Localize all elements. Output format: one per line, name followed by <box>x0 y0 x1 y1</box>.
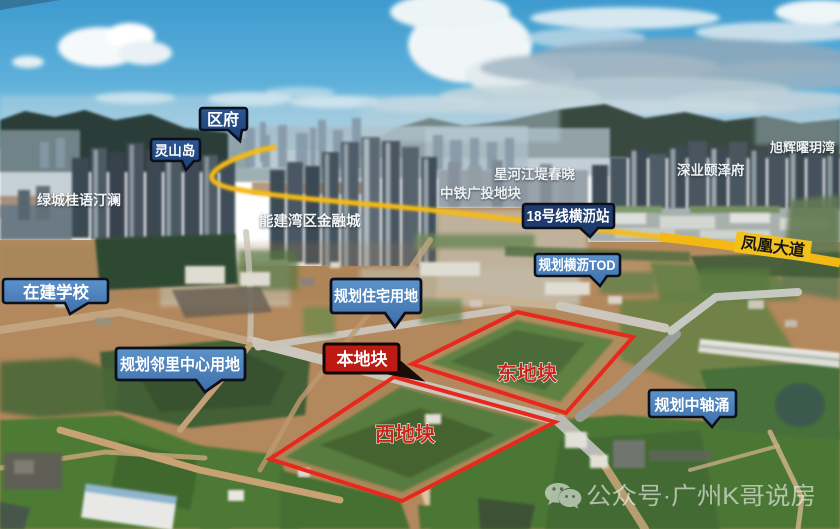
svg-text:能建湾区金融城: 能建湾区金融城 <box>259 212 361 230</box>
svg-text:区府: 区府 <box>207 110 239 129</box>
svg-text:星河江堤春晓: 星河江堤春晓 <box>494 166 575 182</box>
svg-text:东地块: 东地块 <box>497 361 558 385</box>
svg-text:规划横沥TOD: 规划横沥TOD <box>539 257 616 273</box>
svg-text:18号线横沥站: 18号线横沥站 <box>527 207 610 225</box>
svg-text:西地块: 西地块 <box>375 423 436 446</box>
svg-text:中铁广投地块: 中铁广投地块 <box>440 185 521 201</box>
svg-text:公众号·广州K哥说房: 公众号·广州K哥说房 <box>586 483 816 510</box>
svg-text:规划中轴涌: 规划中轴涌 <box>654 396 729 414</box>
svg-text:深业颐泽府: 深业颐泽府 <box>677 162 745 178</box>
svg-text:绿城桂语汀澜: 绿城桂语汀澜 <box>37 192 121 208</box>
svg-text:灵山岛: 灵山岛 <box>155 143 196 159</box>
svg-text:在建学校: 在建学校 <box>23 282 90 302</box>
svg-text:规划住宅用地: 规划住宅用地 <box>334 287 418 305</box>
svg-text:本地块: 本地块 <box>337 349 389 369</box>
svg-text:规划邻里中心用地: 规划邻里中心用地 <box>120 355 240 374</box>
svg-text:旭辉曜玥湾: 旭辉曜玥湾 <box>769 140 835 155</box>
